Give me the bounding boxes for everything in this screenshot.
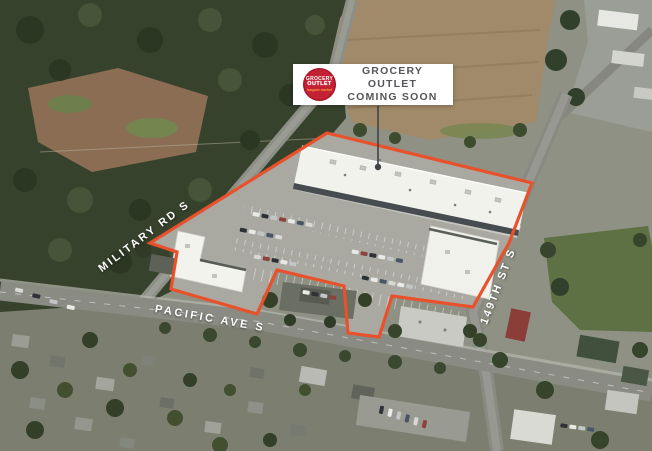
coming-soon-callout: GROCERY OUTLET bargain market GROCERY OU… xyxy=(293,64,453,105)
callout-text: GROCERY OUTLET COMING SOON xyxy=(336,65,453,104)
logo-tagline: bargain market xyxy=(307,89,332,93)
callout-line1: GROCERY OUTLET xyxy=(336,65,449,91)
grocery-outlet-logo: GROCERY OUTLET bargain market xyxy=(303,68,336,101)
green-field xyxy=(540,226,652,332)
leader-dot xyxy=(375,164,381,170)
aerial-site-plan: GROCERY OUTLET bargain market GROCERY OU… xyxy=(0,0,652,451)
logo-word-outlet: OUTLET xyxy=(307,82,331,88)
callout-line2: COMING SOON xyxy=(336,91,449,104)
red-roof-building xyxy=(505,308,531,342)
